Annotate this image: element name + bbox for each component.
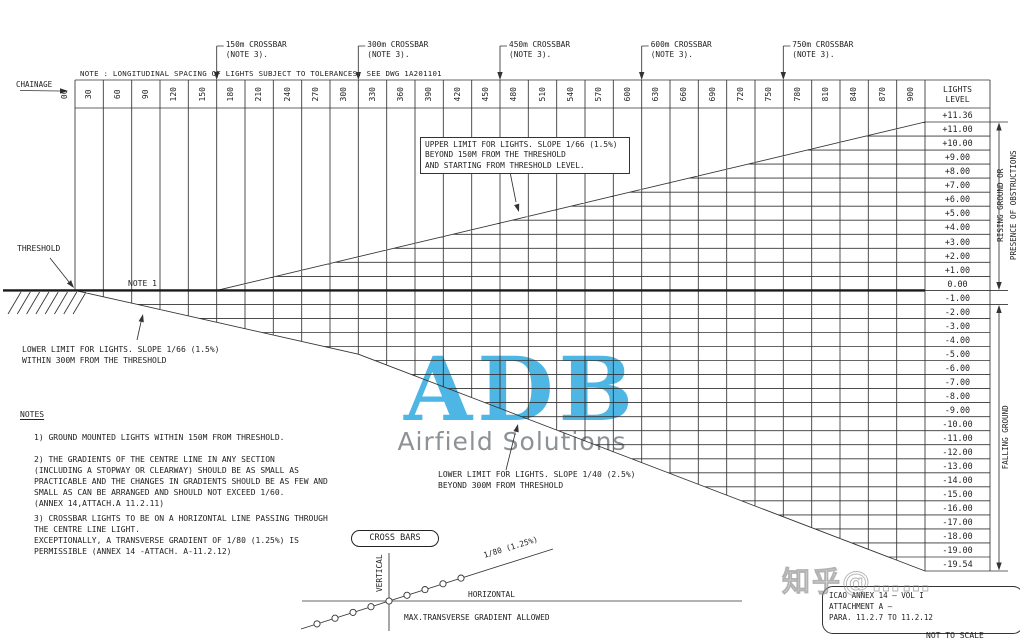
crossbar-callout: 600m CROSSBAR (NOTE 3).	[651, 40, 712, 60]
chainage-value: 30	[84, 81, 95, 107]
note-item-3: 3) CROSSBAR LIGHTS TO BE ON A HORIZONTAL…	[34, 513, 328, 557]
lights-level-value: -9.00	[925, 405, 990, 415]
crossbar-light-dot	[350, 609, 356, 615]
chainage-value: 00	[60, 81, 71, 107]
chainage-label: CHAINAGE	[16, 80, 52, 91]
lower-limit-far-note: LOWER LIMIT FOR LIGHTS. SLOPE 1/40 (2.5%…	[438, 470, 635, 491]
rising-ground-label: RISING GROUND OR	[996, 120, 1007, 290]
chainage-value: 330	[367, 81, 378, 107]
chainage-value: 660	[679, 81, 690, 107]
adb-logo-tagline: Airfield Solutions	[396, 429, 628, 455]
lights-level-value: +5.00	[925, 208, 990, 218]
chainage-value: 690	[707, 81, 718, 107]
lights-level-value: -16.00	[925, 503, 990, 513]
note-item-2: 2) THE GRADIENTS OF THE CENTRE LINE IN A…	[34, 454, 328, 509]
note-item-1: 1) GROUND MOUNTED LIGHTS WITHIN 150M FRO…	[34, 432, 284, 443]
not-to-scale-label: NOT TO SCALE	[926, 631, 984, 642]
adb-logo: ADB	[404, 352, 619, 426]
chainage-value: 270	[311, 81, 322, 107]
lights-level-value: +9.00	[925, 152, 990, 162]
lights-level-value: -11.00	[925, 433, 990, 443]
crossbar-light-dot	[368, 604, 374, 610]
chainage-value: 90	[141, 81, 152, 107]
lights-level-value: +4.00	[925, 222, 990, 232]
cross-bars-badge: CROSS BARS	[351, 530, 439, 547]
lights-level-value: +6.00	[925, 194, 990, 204]
chainage-value: 450	[481, 81, 492, 107]
crossbar-callout: 750m CROSSBAR (NOTE 3).	[792, 40, 853, 60]
crossbar-light-dot	[440, 581, 446, 587]
lights-level-value: -18.00	[925, 531, 990, 541]
lights-level-value: -3.00	[925, 321, 990, 331]
chainage-value: 870	[877, 81, 888, 107]
chainage-value: 780	[792, 81, 803, 107]
mini-horizontal-label: HORIZONTAL	[468, 590, 515, 601]
lights-level-value: +11.36	[925, 110, 990, 120]
chainage-value: 150	[197, 81, 208, 107]
lights-level-value: +10.00	[925, 138, 990, 148]
chainage-value: 240	[282, 81, 293, 107]
note1-label: NOTE 1	[128, 279, 157, 290]
chainage-value: 390	[424, 81, 435, 107]
lights-level-value: -6.00	[925, 363, 990, 373]
lights-level-value: -7.00	[925, 377, 990, 387]
lights-level-value: 0.00	[925, 279, 990, 289]
chainage-value: 810	[821, 81, 832, 107]
notes-title: NOTES	[20, 410, 44, 421]
mini-slope-label: 1/80 (1.25%)	[482, 528, 562, 561]
lights-level-value: +11.00	[925, 124, 990, 134]
lights-level-value: +7.00	[925, 180, 990, 190]
lights-level-value: -13.00	[925, 461, 990, 471]
lower-limit-near-note: LOWER LIMIT FOR LIGHTS. SLOPE 1/66 (1.5%…	[22, 345, 219, 366]
chainage-value: 630	[651, 81, 662, 107]
notes-title-text: NOTES	[20, 410, 44, 419]
chainage-value: 720	[736, 81, 747, 107]
crossbar-light-dot	[422, 587, 428, 593]
watermark: 知乎@……	[782, 577, 932, 588]
threshold-label: THRESHOLD	[17, 244, 60, 255]
crossbar-callout: 150m CROSSBAR (NOTE 3).	[226, 40, 287, 60]
chainage-value: 300	[339, 81, 350, 107]
lights-level-value: -15.00	[925, 489, 990, 499]
chainage-value: 570	[594, 81, 605, 107]
crossbar-callout: 450m CROSSBAR (NOTE 3).	[509, 40, 570, 60]
crossbar-callout: 300m CROSSBAR (NOTE 3).	[367, 40, 428, 60]
chainage-value: 360	[396, 81, 407, 107]
lights-level-header: LIGHTS LEVEL	[925, 85, 990, 104]
lights-level-value: -19.00	[925, 545, 990, 555]
chainage-value: 180	[226, 81, 237, 107]
drawing-sheet: ADB Airfield Solutions CHAINAGE NOTE : L…	[0, 0, 1020, 644]
crossbar-light-dot	[314, 621, 320, 627]
lights-level-value: -19.54	[925, 559, 990, 569]
mini-vertical-label: VERTICAL	[375, 533, 386, 613]
upper-limit-note: UPPER LIMIT FOR LIGHTS. SLOPE 1/66 (1.5%…	[420, 137, 630, 174]
chainage-value: 900	[906, 81, 917, 107]
lights-level-value: -1.00	[925, 293, 990, 303]
chainage-value: 510	[537, 81, 548, 107]
chainage-value: 600	[622, 81, 633, 107]
lights-level-value: +1.00	[925, 265, 990, 275]
lights-level-value: -5.00	[925, 349, 990, 359]
chainage-value: 750	[764, 81, 775, 107]
crossbar-light-dot	[404, 592, 410, 598]
chainage-value: 420	[452, 81, 463, 107]
lights-level-value: +2.00	[925, 251, 990, 261]
chainage-value: 60	[112, 81, 123, 107]
chainage-value: 120	[169, 81, 180, 107]
chainage-value: 840	[849, 81, 860, 107]
crossbar-light-dot	[458, 575, 464, 581]
lights-level-value: -10.00	[925, 419, 990, 429]
presence-obstructions-label: PRESENCE OF OBSTRUCTIONS	[1009, 120, 1020, 290]
falling-ground-label: FALLING GROUND	[1001, 352, 1012, 522]
lights-level-value: -2.00	[925, 307, 990, 317]
crossbar-light-dot	[386, 598, 392, 604]
lights-level-value: -17.00	[925, 517, 990, 527]
chainage-value: 210	[254, 81, 265, 107]
chainage-value: 540	[566, 81, 577, 107]
mini-caption-label: MAX.TRANSVERSE GRADIENT ALLOWED	[404, 613, 550, 624]
lights-level-value: -12.00	[925, 447, 990, 457]
lights-level-value: +3.00	[925, 237, 990, 247]
lights-level-value: +8.00	[925, 166, 990, 176]
lights-level-value: -8.00	[925, 391, 990, 401]
lights-level-value: -4.00	[925, 335, 990, 345]
crossbar-light-dot	[332, 615, 338, 621]
spacing-note: NOTE : LONGITUDINAL SPACING OF LIGHTS SU…	[80, 69, 442, 80]
lights-level-value: -14.00	[925, 475, 990, 485]
chainage-value: 480	[509, 81, 520, 107]
